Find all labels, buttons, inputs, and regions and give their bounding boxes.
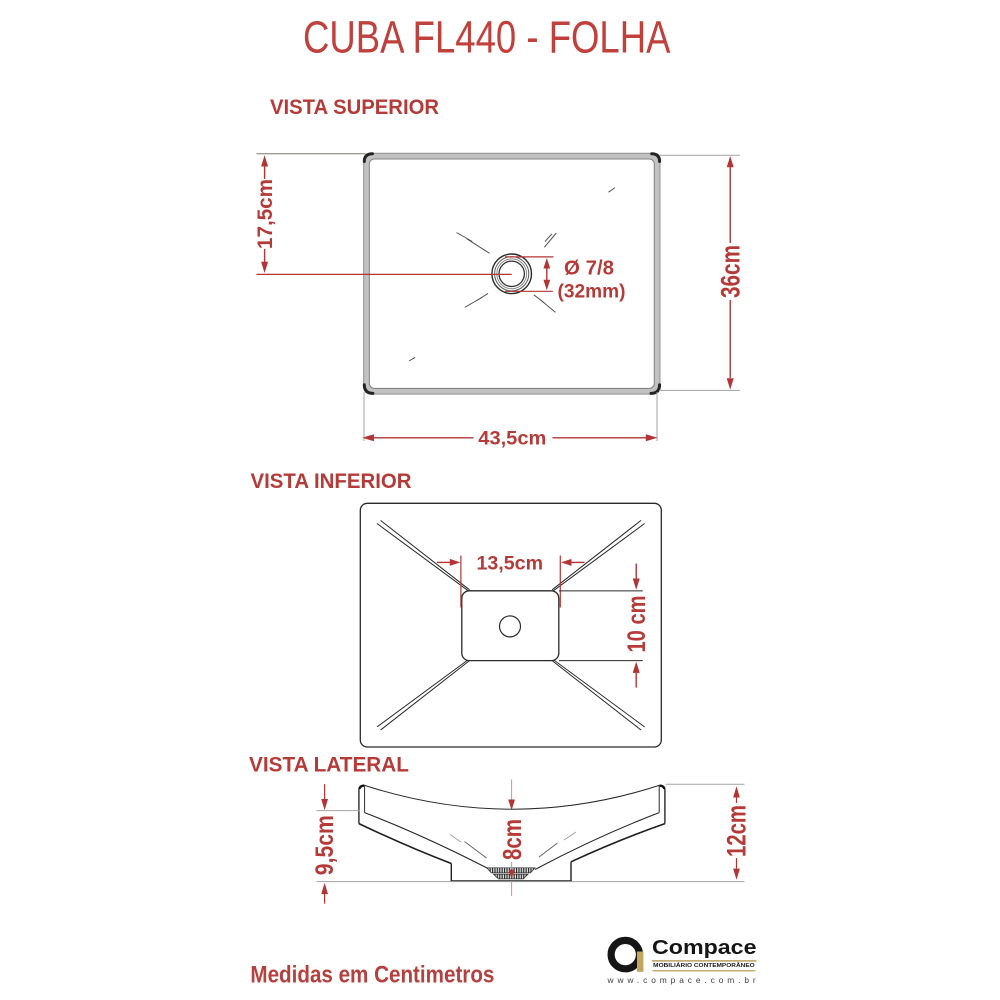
svg-text:43,5cm: 43,5cm bbox=[478, 427, 546, 449]
svg-text:10 cm: 10 cm bbox=[623, 596, 651, 653]
svg-text:13,5cm: 13,5cm bbox=[477, 553, 544, 575]
svg-text:17,5cm: 17,5cm bbox=[253, 179, 277, 249]
svg-text:12cm: 12cm bbox=[722, 805, 752, 857]
svg-text:CUBA FL440 - FOLHA: CUBA FL440 - FOLHA bbox=[303, 12, 671, 63]
svg-text:MOBILIÁRIO CONTEMPORÂNEO: MOBILIÁRIO CONTEMPORÂNEO bbox=[653, 962, 755, 969]
svg-text:36cm: 36cm bbox=[716, 245, 746, 298]
svg-text:Ø 7/8: Ø 7/8 bbox=[564, 257, 614, 279]
svg-text:8cm: 8cm bbox=[497, 819, 527, 860]
svg-text:VISTA LATERAL: VISTA LATERAL bbox=[249, 753, 409, 777]
svg-text:VISTA SUPERIOR: VISTA SUPERIOR bbox=[270, 95, 439, 119]
svg-text:VISTA INFERIOR: VISTA INFERIOR bbox=[251, 469, 412, 493]
svg-text:Medidas em Centimetros: Medidas em Centimetros bbox=[250, 961, 494, 988]
svg-text:www.compace.com.br: www.compace.com.br bbox=[607, 975, 760, 985]
svg-text:9,5cm: 9,5cm bbox=[311, 815, 339, 875]
svg-text:Compace: Compace bbox=[652, 937, 757, 959]
svg-text:(32mm): (32mm) bbox=[558, 281, 626, 303]
